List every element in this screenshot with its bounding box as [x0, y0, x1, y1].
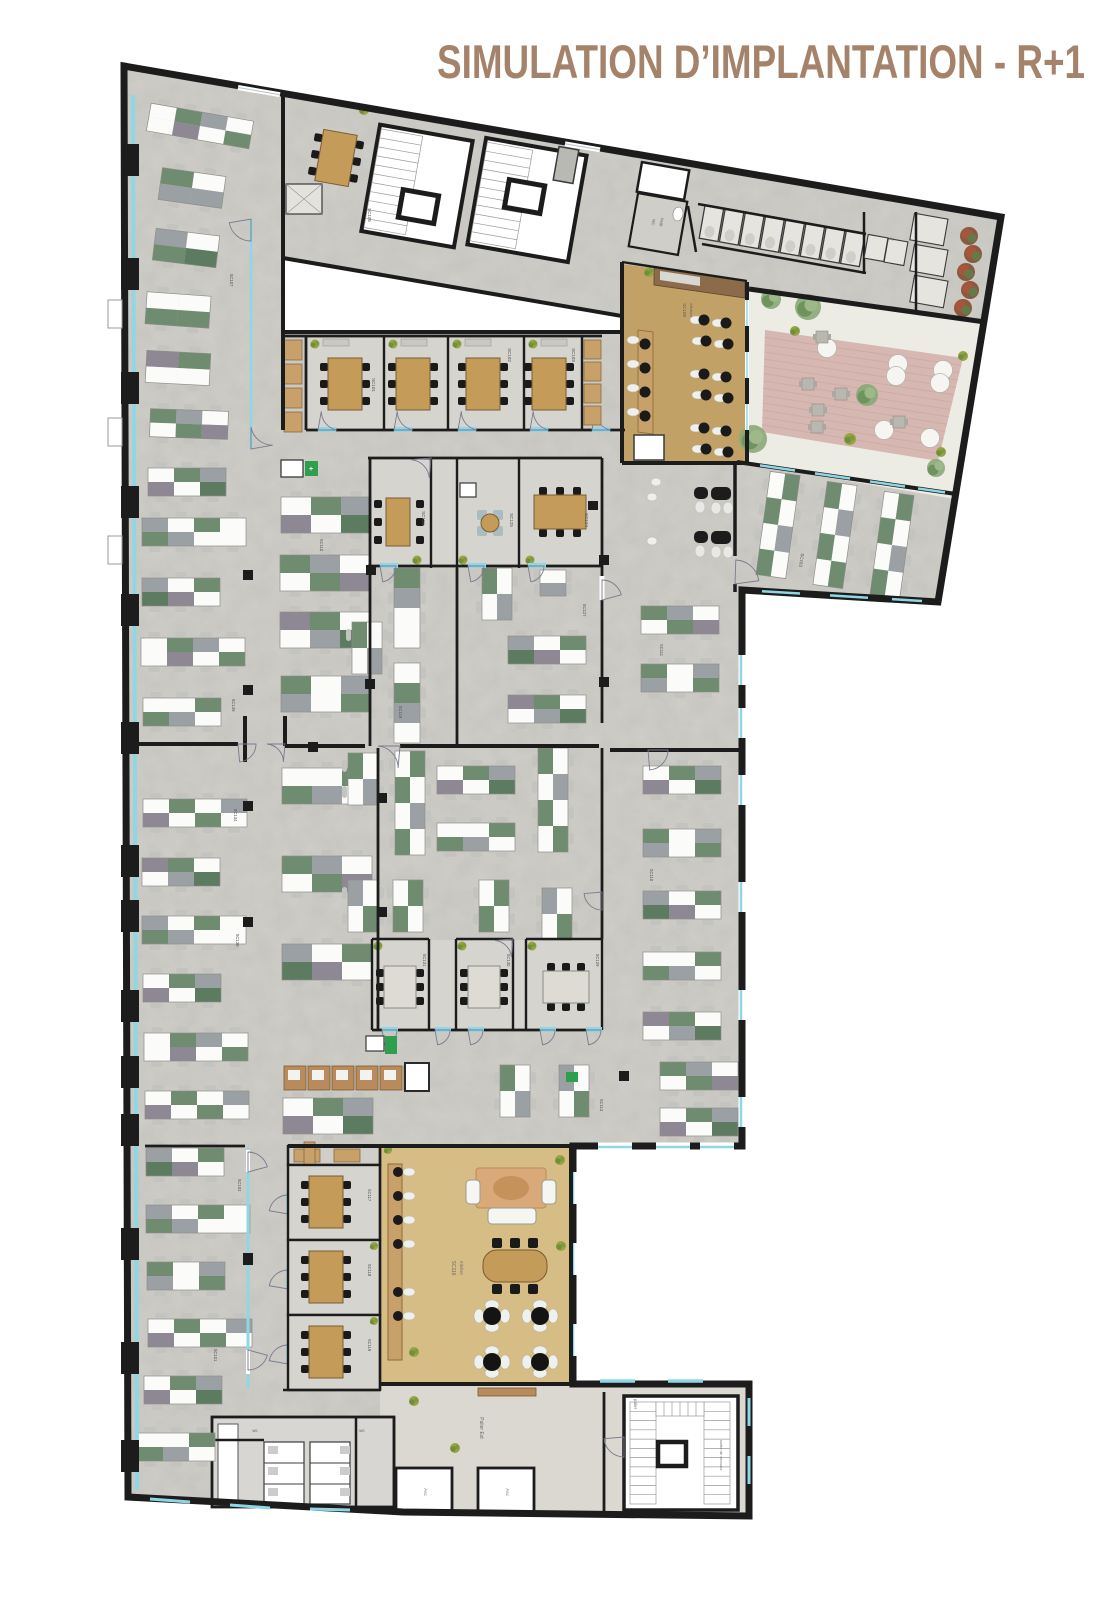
svg-text:SC101: SC101 [213, 1349, 218, 1362]
svg-text:SC110: SC110 [649, 869, 654, 882]
svg-text:SC134: SC134 [233, 809, 238, 822]
svg-text:SC118: SC118 [367, 1264, 372, 1277]
svg-text:SC117: SC117 [367, 1189, 372, 1202]
svg-text:SC126: SC126 [421, 511, 426, 525]
svg-text:Kitchen: Kitchen [459, 1261, 464, 1276]
svg-text:SC127: SC127 [582, 604, 587, 617]
svg-text:SC101: SC101 [371, 378, 376, 392]
svg-text:SC138: SC138 [235, 934, 240, 947]
svg-text:SC102: SC102 [237, 1179, 242, 1192]
svg-text:Kitchen: Kitchen [689, 303, 694, 316]
svg-text:SC103: SC103 [571, 348, 576, 362]
svg-text:Asc: Asc [505, 1488, 510, 1496]
svg-text:wc: wc [359, 1428, 365, 1433]
svg-text:SIMULATION D’IMPLANTATION - R+: SIMULATION D’IMPLANTATION - R+1 [437, 35, 1085, 88]
svg-text:SC107: SC107 [229, 274, 234, 287]
svg-text:wc: wc [888, 236, 894, 242]
svg-text:SC113: SC113 [599, 1099, 604, 1112]
svg-text:palier: palier [633, 1399, 638, 1410]
svg-text:SC119: SC119 [398, 706, 403, 719]
svg-text:sortie de secours: sortie de secours [719, 1440, 724, 1470]
svg-text:SC131: SC131 [422, 954, 427, 967]
svg-text:SC125: SC125 [509, 513, 514, 527]
svg-text:SC108: SC108 [682, 303, 687, 317]
svg-text:SC139: SC139 [231, 699, 236, 712]
svg-text:SC119: SC119 [367, 1339, 372, 1352]
svg-text:Asc: Asc [423, 1488, 428, 1496]
svg-text:SC105: SC105 [367, 208, 372, 222]
svg-text:SC102: SC102 [507, 348, 512, 362]
svg-text:SC111: SC111 [659, 644, 664, 657]
svg-text:+: + [309, 466, 313, 473]
svg-text:Palier Est: Palier Est [478, 1417, 484, 1439]
svg-text:wc: wc [252, 1428, 258, 1433]
svg-text:SC116: SC116 [450, 1261, 456, 1276]
svg-text:SC110: SC110 [319, 539, 324, 552]
svg-text:SC130: SC130 [506, 954, 511, 967]
svg-text:SC129: SC129 [595, 954, 600, 967]
svg-text:SC124: SC124 [584, 513, 589, 527]
